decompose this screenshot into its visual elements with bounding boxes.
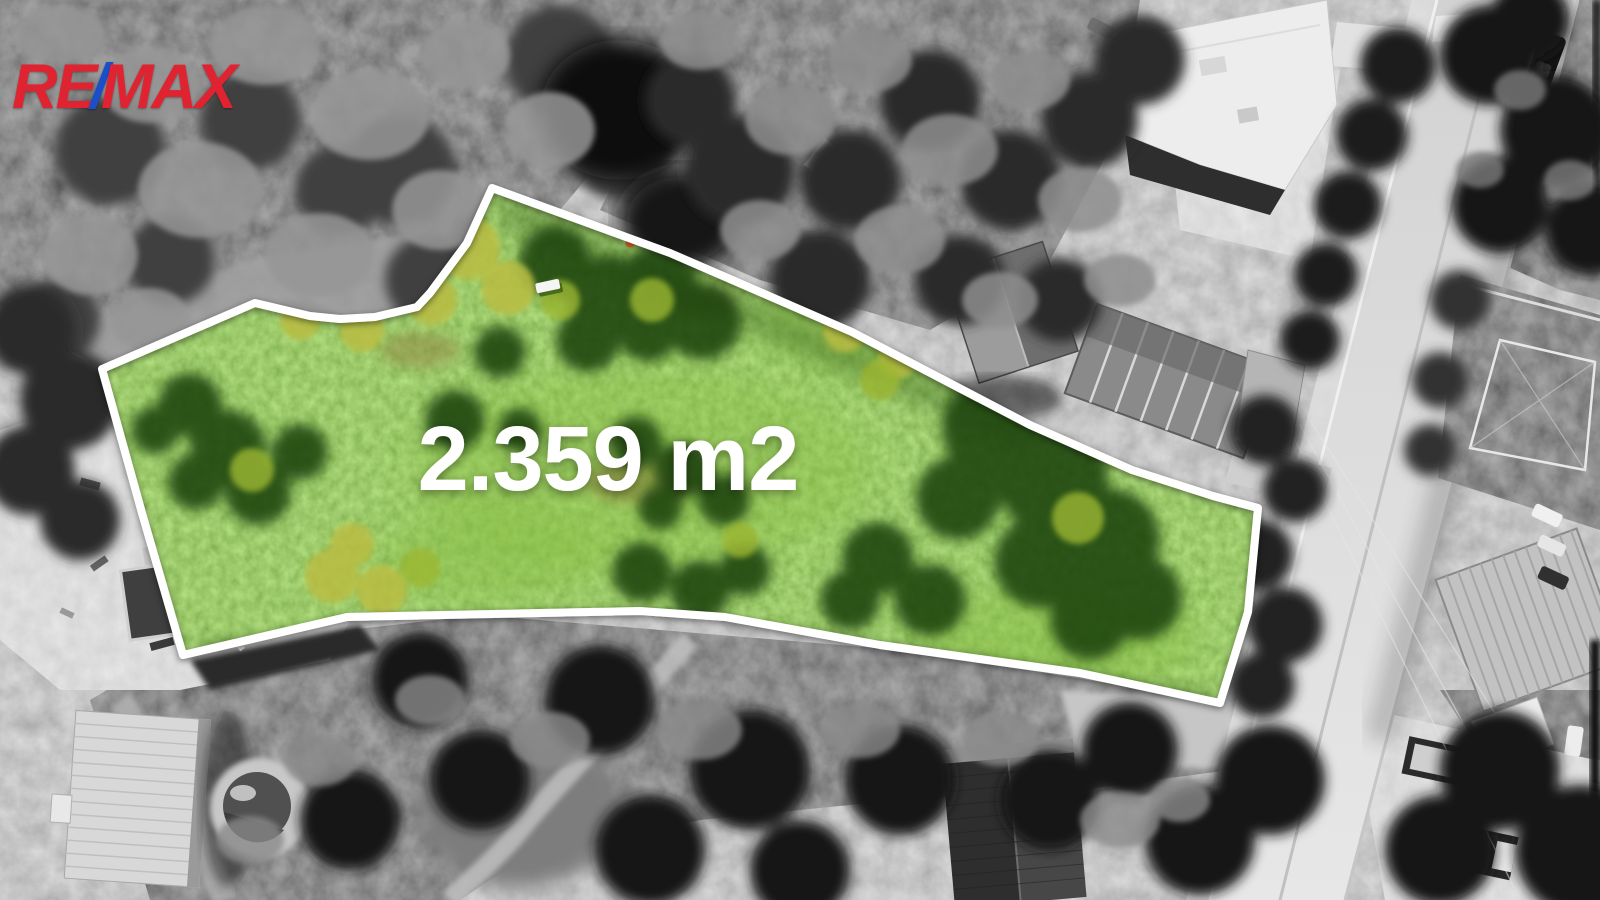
aerial-scene: 2.359 m2	[0, 0, 1600, 900]
remax-logo: RE/MAX	[12, 56, 235, 119]
aerial-photo-canvas: 2.359 m2 RE/MAX	[0, 0, 1600, 900]
logo-re: RE	[12, 52, 96, 122]
logo-max: MAX	[101, 52, 235, 122]
area-label: 2.359 m2	[418, 408, 799, 510]
